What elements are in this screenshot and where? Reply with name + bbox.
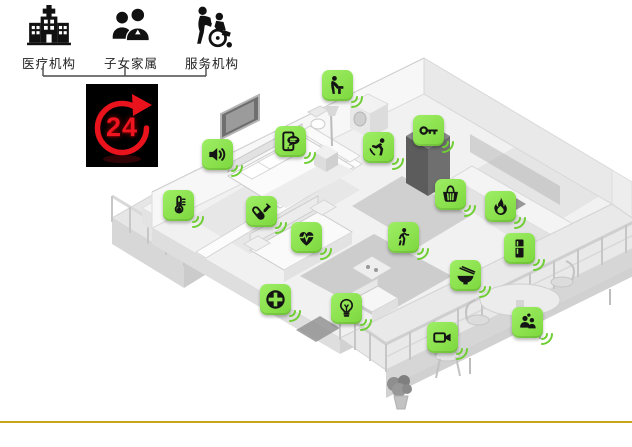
thermometer-icon — [167, 194, 190, 217]
sensor-motion-sensor[interactable] — [388, 222, 419, 253]
sensor-smart-light[interactable] — [331, 293, 362, 324]
sensor-tile[interactable] — [331, 293, 362, 324]
signal-waves-icon — [360, 319, 374, 333]
signal-waves-icon — [275, 222, 289, 236]
sensor-tile[interactable] — [450, 260, 481, 291]
sensor-tile[interactable] — [427, 322, 458, 353]
sensor-tile[interactable] — [275, 126, 306, 157]
signal-waves-icon — [417, 248, 431, 262]
flame-icon — [489, 195, 512, 218]
key-icon — [417, 119, 440, 142]
signal-waves-icon — [514, 217, 528, 231]
sensor-tile[interactable] — [202, 139, 233, 170]
sensor-tile[interactable] — [246, 196, 277, 227]
24-hour-service-badge: 24 — [86, 84, 158, 167]
sensor-meal-service[interactable] — [450, 260, 481, 291]
signal-waves-icon — [320, 248, 334, 262]
sensor-video-monitor[interactable] — [427, 322, 458, 353]
bulb-icon — [335, 297, 358, 320]
signal-waves-icon — [479, 286, 493, 300]
signal-waves-icon — [231, 165, 245, 179]
signal-waves-icon — [442, 141, 456, 155]
walking-person-icon — [392, 226, 415, 249]
sensor-heart-rate-monitor[interactable] — [291, 222, 322, 253]
connector-bracket — [0, 0, 240, 92]
signal-waves-icon — [392, 158, 406, 172]
signal-waves-icon — [289, 310, 303, 324]
sensor-grocery-service[interactable] — [435, 179, 466, 210]
medical-cross-icon — [264, 288, 287, 311]
sensor-fall-detector[interactable] — [363, 132, 394, 163]
video-camera-icon — [431, 326, 454, 349]
sensor-audio-alarm[interactable] — [202, 139, 233, 170]
signal-waves-icon — [192, 216, 206, 230]
signal-waves-icon — [533, 259, 547, 273]
sensor-washbasin-monitor[interactable] — [322, 70, 353, 101]
signal-waves-icon — [456, 348, 470, 362]
sensor-tile[interactable] — [388, 222, 419, 253]
sensor-gas-fire-alarm[interactable] — [485, 191, 516, 222]
sensor-smart-fridge[interactable] — [504, 233, 535, 264]
heart-ecg-icon — [295, 226, 318, 249]
sensor-tile[interactable] — [260, 284, 291, 315]
falling-person-icon — [367, 136, 390, 159]
signal-waves-icon — [464, 205, 478, 219]
message-phone-icon — [279, 130, 302, 153]
sensor-tile[interactable] — [485, 191, 516, 222]
sensor-tile[interactable] — [163, 190, 194, 221]
people-icon — [516, 311, 539, 334]
sensor-tile[interactable] — [413, 115, 444, 146]
sensor-tile[interactable] — [363, 132, 394, 163]
sensor-voice-intercom[interactable] — [275, 126, 306, 157]
sensor-medication-reminder[interactable] — [246, 196, 277, 227]
sensor-visitor-monitor[interactable] — [512, 307, 543, 338]
sensor-tile[interactable] — [435, 179, 466, 210]
sensor-tile[interactable] — [291, 222, 322, 253]
washing-person-icon — [326, 74, 349, 97]
sensor-tile[interactable] — [322, 70, 353, 101]
speaker-icon — [206, 143, 229, 166]
sensor-smart-lock[interactable] — [413, 115, 444, 146]
smart-home-care-infographic: 医疗机构子女家属服务机构 24 — [0, 0, 632, 447]
shopping-basket-icon — [439, 183, 462, 206]
pills-icon — [250, 200, 273, 223]
sensor-emergency-call[interactable] — [260, 284, 291, 315]
signal-waves-icon — [541, 333, 555, 347]
signal-waves-icon — [351, 96, 365, 110]
fridge-icon — [508, 237, 531, 260]
rice-bowl-icon — [454, 264, 477, 287]
sensor-tile[interactable] — [512, 307, 543, 338]
sensor-tile[interactable] — [504, 233, 535, 264]
signal-waves-icon — [304, 152, 318, 166]
badge-24-label: 24 — [86, 112, 158, 143]
sensor-temperature-sensor[interactable] — [163, 190, 194, 221]
